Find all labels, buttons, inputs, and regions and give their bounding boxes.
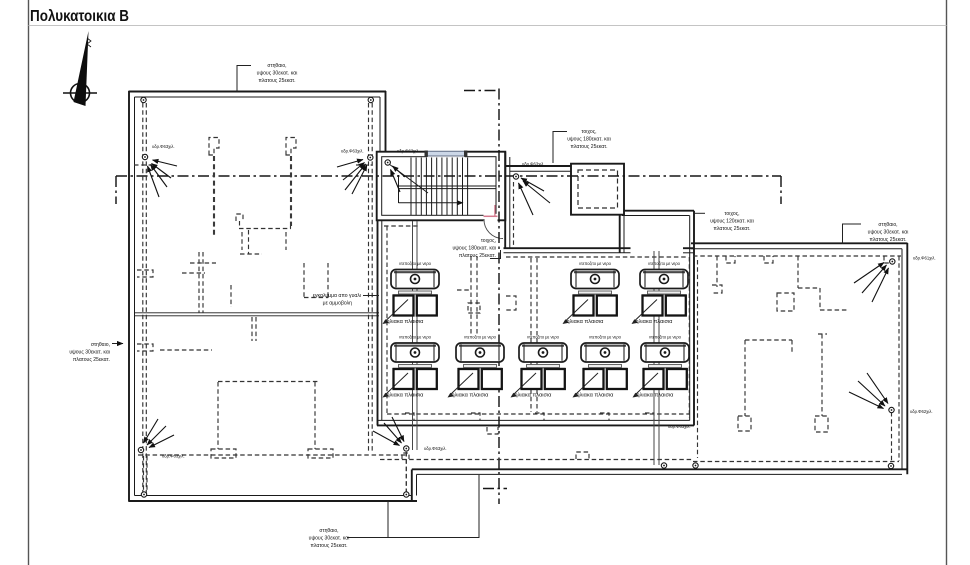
svg-text:υδρ.Φ63χιλ.: υδρ.Φ63χιλ.: [668, 424, 691, 429]
svg-text:στηθαιο,: στηθαιο,: [91, 342, 110, 348]
svg-text:υδρ.Φ61χιλ.: υδρ.Φ61χιλ.: [913, 256, 936, 261]
svg-text:τοιχος,: τοιχος,: [724, 211, 739, 217]
svg-text:υδρ.Φ63χιλ.: υδρ.Φ63χιλ.: [424, 446, 447, 451]
svg-text:τοιχος,: τοιχος,: [481, 238, 496, 244]
svg-text:υψους 30εκατ. και: υψους 30εκατ. και: [257, 71, 298, 77]
svg-text:πλατους 25εκατ.: πλατους 25εκατ.: [258, 78, 295, 84]
svg-text:πλατους 25εκατ.: πλατους 25εκατ.: [869, 237, 906, 243]
svg-text:τοιχος,: τοιχος,: [581, 129, 596, 135]
svg-text:υδρ.Φ63χιλ.: υδρ.Φ63χιλ.: [341, 149, 364, 154]
svg-text:πλατους 25εκατ.: πλατους 25εκατ.: [73, 357, 110, 363]
svg-text:στηθαιο,: στηθαιο,: [319, 528, 338, 534]
svg-text:πλατους 25εκατ.: πλατους 25εκατ.: [570, 144, 607, 150]
svg-text:υδρ.Φ63χιλ.: υδρ.Φ63χιλ.: [522, 162, 545, 167]
svg-text:υδρ.Φ63χιλ.: υδρ.Φ63χιλ.: [397, 149, 420, 154]
svg-text:υψους 30εκατ. και: υψους 30εκατ. και: [309, 536, 350, 542]
svg-text:στηθαιο,: στηθαιο,: [878, 222, 897, 228]
svg-text:υψους 120εκατ. και: υψους 120εκατ. και: [710, 219, 754, 225]
svg-text:πλατους 25εκατ.: πλατους 25εκατ.: [713, 226, 750, 232]
svg-text:υψους 180εκατ. και: υψους 180εκατ. και: [567, 137, 611, 143]
svg-text:υδρ.Φ63χιλ.: υδρ.Φ63χιλ.: [152, 144, 175, 149]
svg-text:υψους 30εκατ. και: υψους 30εκατ. και: [69, 350, 110, 356]
svg-text:υψους 180εκατ. και: υψους 180εκατ. και: [452, 246, 496, 252]
svg-text:υδρ.Φ63χιλ.: υδρ.Φ63χιλ.: [162, 454, 185, 459]
svg-text:στηθαιο,: στηθαιο,: [267, 63, 286, 69]
svg-text:εγκαλυμμα απο γυαλι: εγκαλυμμα απο γυαλι: [313, 293, 361, 299]
svg-text:Πολυκατοικια Β: Πολυκατοικια Β: [30, 8, 129, 25]
svg-text:πλατους 25εκατ.: πλατους 25εκατ.: [310, 543, 347, 549]
svg-text:υψους 30εκατ. και: υψους 30εκατ. και: [868, 230, 909, 236]
svg-text:υδρ.Φ62χιλ.: υδρ.Φ62χιλ.: [910, 409, 933, 414]
svg-text:με αμμοβολη: με αμμοβολη: [323, 301, 352, 307]
